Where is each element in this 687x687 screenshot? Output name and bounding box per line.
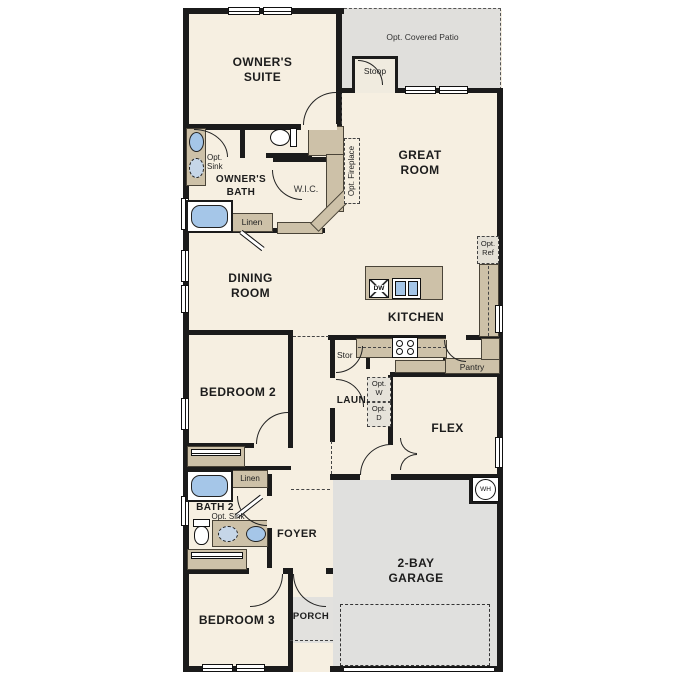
room-label-bedroom3: BEDROOM 3	[190, 613, 284, 628]
wic-shelving	[308, 126, 344, 156]
patio-wall-dash	[341, 94, 342, 124]
room-label-owners-bath: OWNER'S BATH	[205, 174, 277, 199]
window	[405, 86, 436, 94]
wall	[497, 88, 503, 672]
label-linen-bath2: Linen	[235, 474, 265, 483]
floor-plan: DW WH OWNER'S SUITE Opt. Covered Patio S…	[0, 0, 687, 687]
garage-bay-outline	[340, 604, 490, 666]
toilet-tank	[290, 128, 297, 147]
bathtub-basin	[191, 475, 228, 497]
room-label-porch: PORCH	[290, 611, 332, 623]
optional-sink-icon	[189, 158, 204, 178]
garage-door	[344, 667, 494, 672]
wall	[273, 157, 331, 162]
window	[181, 398, 189, 430]
window	[228, 7, 260, 15]
porch-edge-dash	[290, 640, 333, 641]
room-label-kitchen: KITCHEN	[383, 310, 449, 325]
label-linen-owner: Linen	[236, 218, 268, 228]
kitchen-counter-lower	[395, 360, 447, 373]
dishwasher-label: DW	[373, 285, 386, 292]
opening-dash	[291, 489, 330, 490]
label-opt-sink-owner: Opt. Sink	[207, 153, 231, 171]
bathtub-basin	[191, 205, 228, 228]
stove-icon	[392, 337, 418, 358]
window	[495, 305, 503, 333]
wall	[288, 330, 293, 448]
closet-shelf-line	[191, 449, 241, 456]
sink-basin	[395, 281, 406, 296]
toilet-icon	[270, 129, 290, 146]
counter-dash	[488, 266, 489, 336]
room-label-foyer: FOYER	[271, 528, 323, 542]
label-opt-ref: Opt. Ref	[478, 240, 498, 257]
room-label-garage: 2-BAY GARAGE	[378, 556, 454, 586]
window	[263, 7, 292, 15]
room-label-owners-suite: OWNER'S SUITE	[215, 55, 310, 85]
label-opt-fireplace: Opt. Fireplace	[347, 136, 357, 206]
window	[236, 664, 265, 672]
label-stoop: Stoop	[357, 67, 393, 77]
room-label-bedroom2: BEDROOM 2	[192, 385, 284, 400]
label-opt-d: Opt. D	[369, 405, 389, 422]
window	[439, 86, 468, 94]
kitchen-sink-icon	[392, 278, 421, 299]
wall	[330, 408, 335, 442]
wall	[330, 335, 335, 378]
sink-basin	[408, 281, 419, 296]
wall	[183, 330, 293, 335]
sink-icon	[189, 132, 204, 152]
window	[202, 664, 233, 672]
opening-dash	[331, 441, 332, 474]
window	[181, 250, 189, 282]
dishwasher-icon: DW	[369, 279, 389, 298]
pantry-shelf	[481, 338, 500, 360]
window	[181, 285, 189, 313]
closet-shelf-line	[191, 552, 243, 559]
sink-icon	[246, 526, 266, 542]
toilet-icon	[194, 526, 209, 545]
room-label-laundry: LAUN.	[332, 395, 374, 408]
door-gap	[267, 496, 272, 528]
opening-dash	[293, 336, 329, 337]
water-heater-icon: WH	[475, 479, 496, 500]
label-opt-sink-bath2: Opt. Sink	[206, 512, 250, 521]
label-wic: W.I.C.	[288, 184, 324, 194]
wall	[240, 124, 245, 158]
water-heater-label: WH	[480, 486, 491, 493]
room-label-dining-room: DINING ROOM	[218, 271, 283, 301]
room-label-flex: FLEX	[420, 421, 475, 436]
label-opt-covered-patio: Opt. Covered Patio	[360, 33, 485, 43]
label-pantry: Pantry	[452, 363, 492, 373]
window	[495, 437, 503, 468]
label-stor: Stor	[337, 351, 363, 361]
optional-sink-icon	[218, 526, 238, 542]
room-label-great-room: GREAT ROOM	[385, 148, 455, 178]
label-opt-w: Opt. W	[369, 380, 389, 397]
